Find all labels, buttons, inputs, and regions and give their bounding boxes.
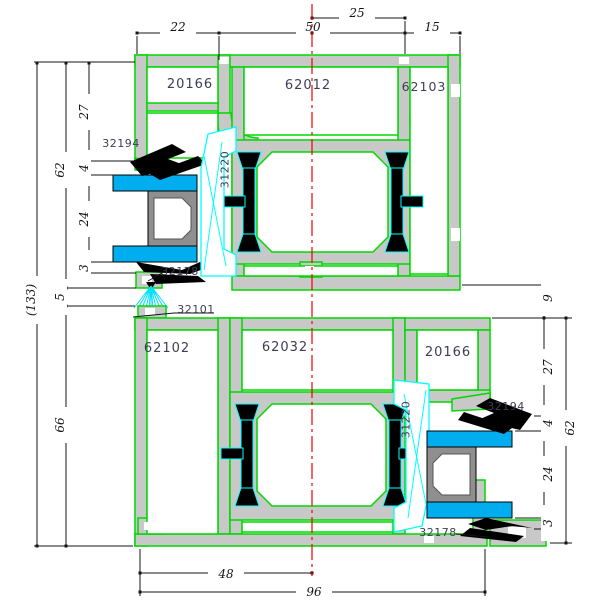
mullion-hollow-chamber: [257, 152, 388, 252]
top-frame-plate: [135, 55, 460, 67]
mullion-hollow-chamber: [257, 404, 386, 506]
glass-pane: [427, 431, 512, 447]
glass-pane: [427, 502, 512, 518]
cad-drawing-canvas: 20166 62012 62103 62102 62032 20166 3219…: [0, 0, 600, 600]
profile-section-drawing: [0, 0, 600, 600]
glass-pane: [113, 246, 197, 262]
bottom-frame-plate: [135, 534, 487, 546]
top-glazing-unit: [113, 175, 197, 262]
glass-pane: [113, 175, 197, 191]
bottom-glazing-unit: [427, 431, 512, 518]
